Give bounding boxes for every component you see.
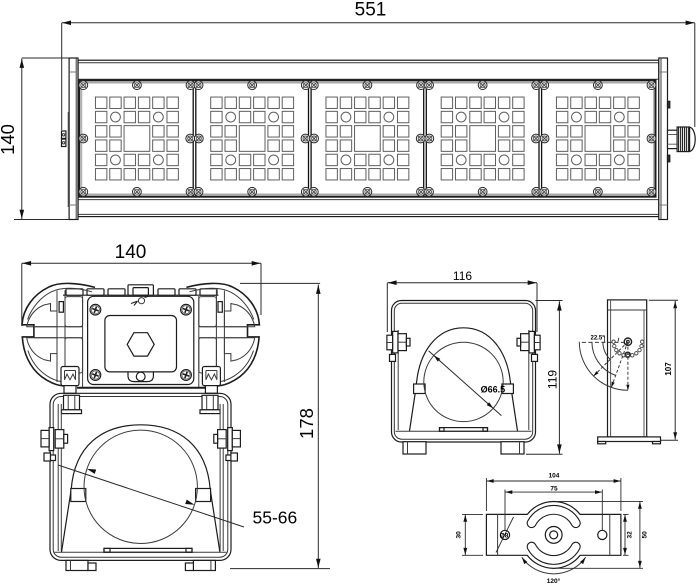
svg-text:22.5°: 22.5° xyxy=(591,336,606,342)
svg-text:119: 119 xyxy=(546,370,560,389)
svg-text:30: 30 xyxy=(455,531,462,539)
svg-text:551: 551 xyxy=(355,0,387,21)
svg-text:Ø66.5: Ø66.5 xyxy=(481,384,506,394)
svg-text:104: 104 xyxy=(549,473,560,480)
svg-text:55-66: 55-66 xyxy=(253,508,298,528)
svg-text:107: 107 xyxy=(664,362,673,376)
svg-text:32: 32 xyxy=(626,531,633,539)
svg-text:140: 140 xyxy=(115,242,147,263)
svg-text:120°: 120° xyxy=(547,577,561,585)
svg-text:116: 116 xyxy=(453,269,472,283)
svg-text:Ø8: Ø8 xyxy=(500,533,509,540)
svg-text:140: 140 xyxy=(0,124,18,155)
svg-text:75: 75 xyxy=(550,485,558,492)
svg-text:50: 50 xyxy=(642,531,649,539)
svg-text:178: 178 xyxy=(296,408,317,439)
